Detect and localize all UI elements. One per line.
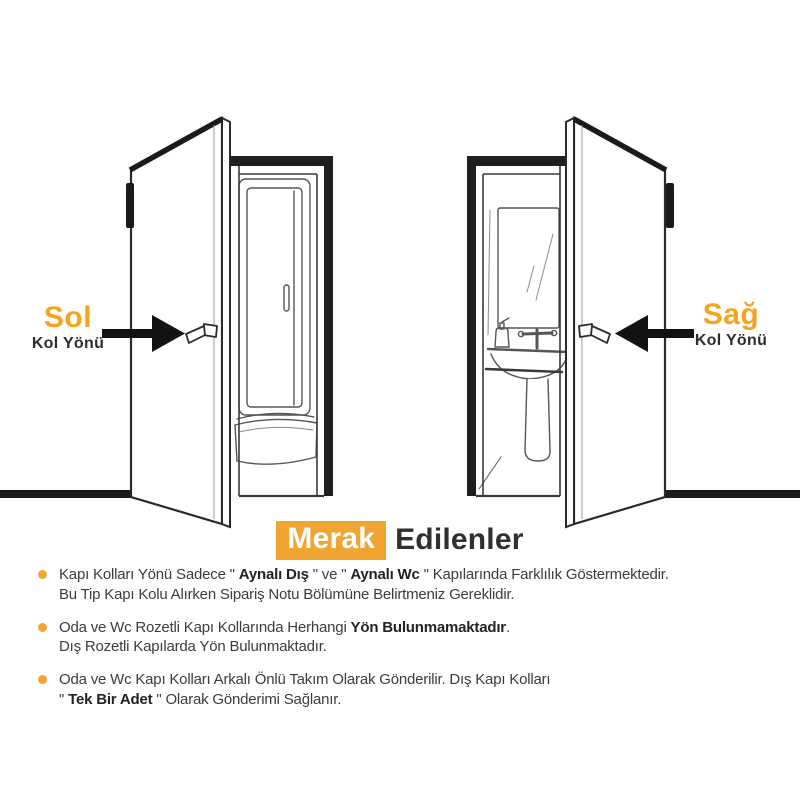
left-door-frame-header (228, 156, 333, 166)
faq-item-text: Oda ve Wc Kapı Kolları Arkalı Önlü Takım… (59, 670, 788, 710)
bullet-dot-icon (38, 570, 47, 579)
right-direction-text: Sağ (669, 300, 793, 330)
faq-bold-segment: Aynalı Wc (350, 566, 419, 583)
left-floor-line (0, 490, 136, 498)
right-direction-label: Sağ Kol Yönü (669, 300, 793, 349)
shower-cabin-drawing (235, 179, 317, 464)
right-door-leaf (566, 118, 674, 527)
left-direction-subtext: Kol Yönü (6, 336, 130, 352)
faq-bold-segment: Tek Bir Adet (68, 691, 152, 708)
right-direction-subtext: Kol Yönü (669, 333, 793, 349)
shower-handle-icon (284, 285, 289, 311)
faq-text-segment: Bu Tip Kapı Kolu Alırken Sipariş Notu Bö… (59, 586, 514, 603)
faq-text-segment: Oda ve Wc Kapı Kolları Arkalı Önlü Takım… (59, 671, 550, 688)
left-door-leaf (126, 118, 230, 527)
left-door-hinge-icon (126, 183, 134, 228)
faq-line: Bu Tip Kapı Kolu Alırken Sipariş Notu Bö… (59, 585, 788, 605)
faq-line: Dış Rozetli Kapılarda Yön Bulunmaktadır. (59, 637, 788, 657)
faq-item: Oda ve Wc Rozetli Kapı Kollarında Herhan… (38, 618, 788, 658)
faq-line: Oda ve Wc Kapı Kolları Arkalı Önlü Takım… (59, 670, 788, 690)
faq-line: Oda ve Wc Rozetli Kapı Kollarında Herhan… (59, 618, 788, 638)
faq-text-segment: Dış Rozetli Kapılarda Yön Bulunmaktadır. (59, 638, 327, 655)
right-floor-line (664, 490, 800, 498)
bullet-dot-icon (38, 675, 47, 684)
faq-text-segment: Kapı Kolları Yönü Sadece " (59, 566, 239, 583)
faq-text-segment: " Olarak Gönderimi Sağlanır. (152, 691, 341, 708)
faq-item: Kapı Kolları Yönü Sadece " Aynalı Dış " … (38, 565, 788, 605)
sink-pedestal-icon (525, 379, 550, 461)
faq-bold-segment: Aynalı Dış (239, 566, 309, 583)
faq-list: Kapı Kolları Yönü Sadece " Aynalı Dış " … (38, 565, 788, 723)
faq-text-segment: . (506, 619, 510, 636)
faq-item: Oda ve Wc Kapı Kolları Arkalı Önlü Takım… (38, 670, 788, 710)
bullet-dot-icon (38, 623, 47, 632)
bathroom-sink-mirror-drawing (479, 208, 568, 489)
faq-title-rest: Edilenler (395, 523, 524, 557)
faq-bold-segment: Yön Bulunmamaktadır (351, 619, 506, 636)
faq-item-text: Kapı Kolları Yönü Sadece " Aynalı Dış " … (59, 565, 788, 605)
left-direction-label: Sol Kol Yönü (6, 303, 130, 352)
left-direction-text: Sol (6, 303, 130, 333)
faq-line: Kapı Kolları Yönü Sadece " Aynalı Dış " … (59, 565, 788, 585)
product-infographic: Sol Kol Yönü Sağ Kol Yönü Merak Edilenle… (0, 0, 800, 800)
right-door-frame-header (467, 156, 572, 166)
faq-title-highlight: Merak (276, 521, 386, 560)
faq-text-segment: " ve " (309, 566, 351, 583)
faq-item-text: Oda ve Wc Rozetli Kapı Kollarında Herhan… (59, 618, 788, 658)
left-door-frame-jamb (324, 156, 333, 496)
right-door-frame-jamb (467, 156, 476, 496)
faucet-icon (518, 330, 556, 348)
faq-text-segment: " (59, 691, 68, 708)
faq-text-segment: " Kapılarında Farklılık Göstermektedir. (420, 566, 669, 583)
right-door-hinge-icon (666, 183, 674, 228)
faq-section-title: Merak Edilenler (0, 521, 800, 560)
faq-text-segment: Oda ve Wc Rozetli Kapı Kollarında Herhan… (59, 619, 351, 636)
faq-line: " Tek Bir Adet " Olarak Gönderimi Sağlan… (59, 690, 788, 710)
door-direction-illustration (0, 0, 800, 560)
soap-bottle-icon (495, 318, 509, 347)
mirror-icon (498, 208, 559, 328)
